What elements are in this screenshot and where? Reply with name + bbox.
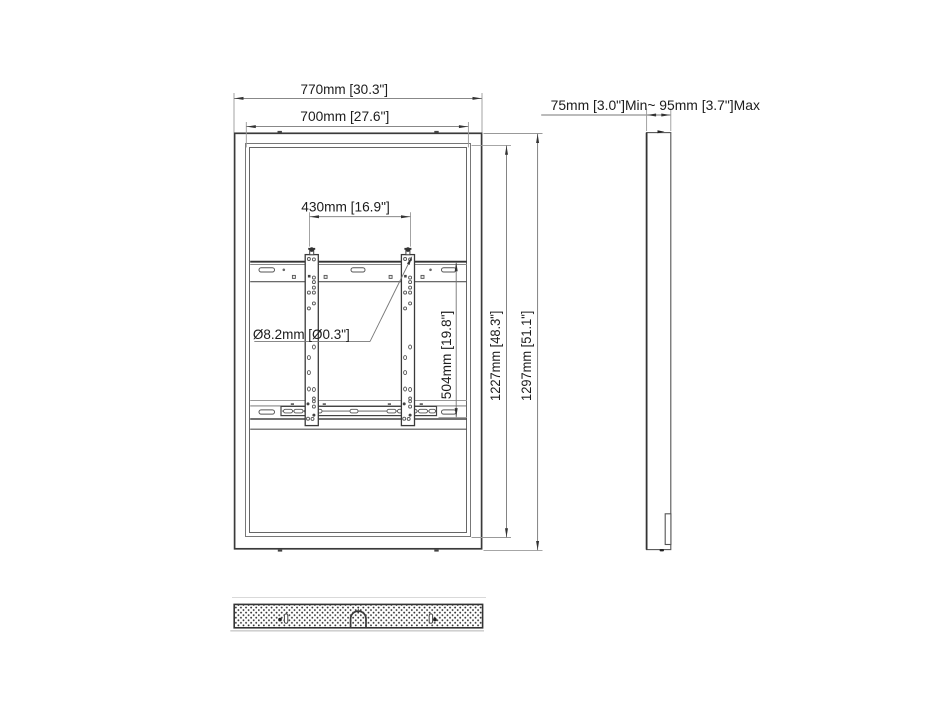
svg-text:1227mm [48.3"]: 1227mm [48.3"] (487, 311, 503, 401)
svg-text:Ø8.2mm [Ø0.3"]: Ø8.2mm [Ø0.3"] (253, 326, 350, 342)
svg-text:1297mm [51.1"]: 1297mm [51.1"] (518, 311, 534, 401)
svg-text:504mm [19.8"]: 504mm [19.8"] (438, 311, 454, 400)
svg-text:770mm [30.3"]: 770mm [30.3"] (301, 81, 389, 97)
svg-text:430mm [16.9"]: 430mm [16.9"] (301, 198, 390, 214)
svg-text:75mm [3.0"]Min~ 95mm [3.7"]Max: 75mm [3.0"]Min~ 95mm [3.7"]Max (551, 97, 760, 113)
svg-text:700mm [27.6"]: 700mm [27.6"] (300, 108, 389, 124)
